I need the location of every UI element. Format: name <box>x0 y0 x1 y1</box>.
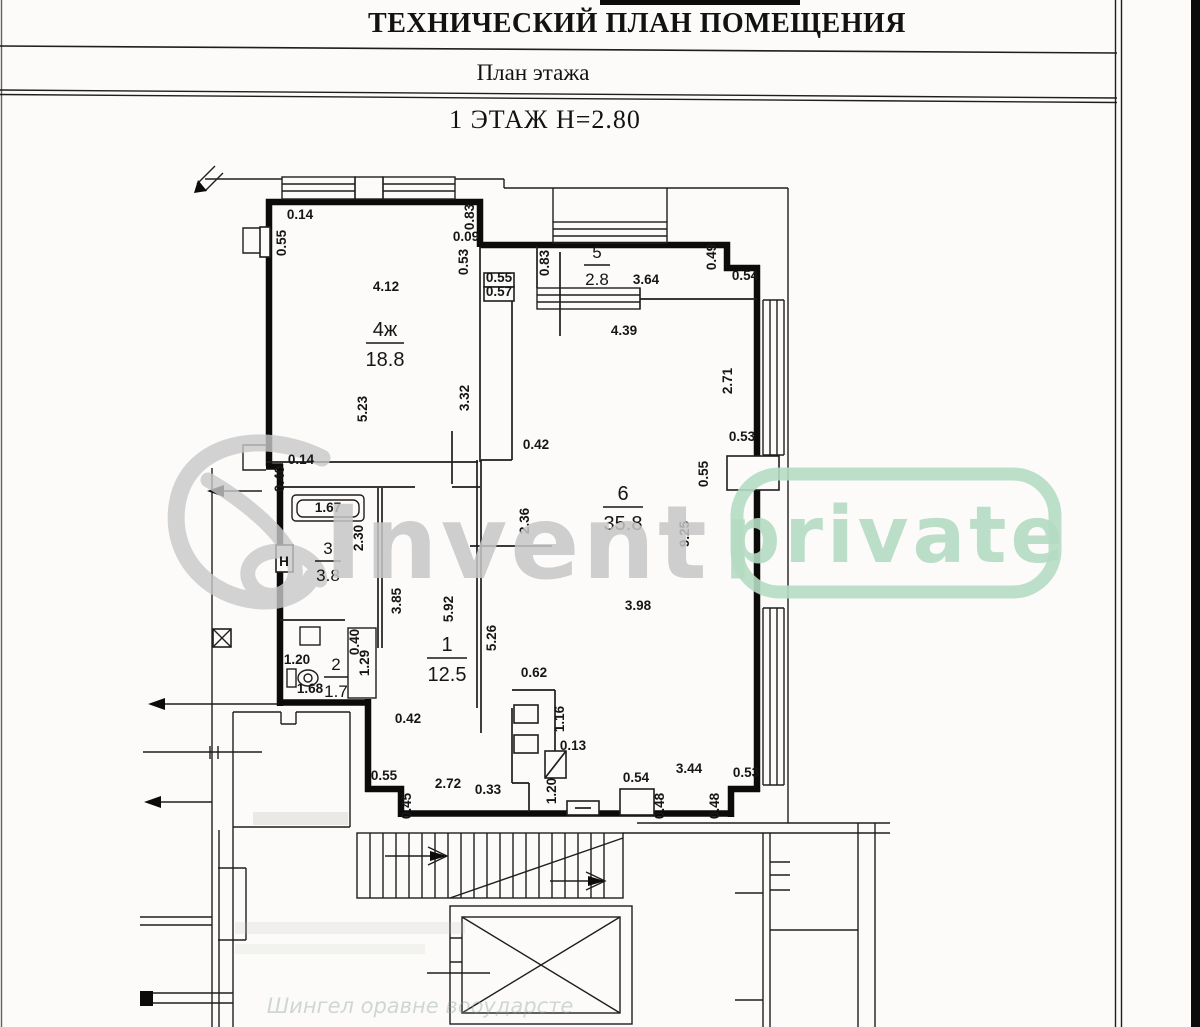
staircase <box>357 833 623 898</box>
dimension-label: 0.49 <box>704 244 719 270</box>
dimension-label: 5.26 <box>484 624 499 651</box>
dimension-label: 0.42 <box>523 437 549 452</box>
dimension-label: 0.48 <box>707 792 722 819</box>
room-number: 2 <box>331 655 340 674</box>
dimension-label: 2.71 <box>720 367 735 394</box>
watermark-brand: Invent <box>324 484 710 603</box>
dimension-label: 0.48 <box>652 792 667 819</box>
dimension-label: Н <box>279 554 289 569</box>
room-number: 5 <box>592 243 601 262</box>
dimension-label: 2.72 <box>435 776 461 791</box>
dimension-label: 5.23 <box>355 395 370 422</box>
dimension-label: 3.32 <box>457 385 472 411</box>
scan-bleed-smudges <box>235 922 465 954</box>
dimension-label: 4.39 <box>611 323 637 338</box>
room-area: 12.5 <box>428 664 467 686</box>
dimension-label: 0.54 <box>623 770 650 785</box>
dimension-label: 0.83 <box>462 203 477 230</box>
dimension-label: 1.20 <box>544 778 559 804</box>
dimension-label: 0.55 <box>486 270 513 285</box>
dimension-label: 0.57 <box>486 284 512 299</box>
adjacent-structures <box>623 823 890 1027</box>
dimension-label: 3.44 <box>676 761 703 776</box>
room-area: 18.8 <box>366 349 405 371</box>
watermark-text: Inventprivate <box>324 474 1067 603</box>
room-labels: 4ж18.852.8635.833.8112.521.7 <box>315 243 643 701</box>
dimension-label: 0.33 <box>475 782 502 797</box>
dimension-label: 0.09 <box>453 229 479 244</box>
dimension-label: 0.53 <box>456 248 471 275</box>
document-page: ТЕХНИЧЕСКИЙ ПЛАН ПОМЕЩЕНИЯ План этажа 1 … <box>0 0 1200 1027</box>
dimension-label: 0.62 <box>521 665 547 680</box>
dimension-label: 1.16 <box>552 705 567 732</box>
dimension-label: 3.64 <box>633 272 660 287</box>
dimension-label: 0.83 <box>537 249 552 276</box>
watermark-badge-text: private <box>725 491 1068 581</box>
dimension-label: 1.20 <box>284 652 310 667</box>
floor-plan-drawing: 0.140.554.125.233.320.830.090.530.550.57… <box>0 0 1200 1027</box>
stair-direction-arrow <box>385 847 447 865</box>
faint-stamp-text: Шингел оравне вооударсте <box>267 994 574 1018</box>
dimension-label: 0.54 <box>732 268 759 283</box>
dimension-label: 0.42 <box>395 711 421 726</box>
dimension-label: 0.40 <box>272 466 287 492</box>
room-number: 4ж <box>373 319 398 341</box>
dimension-label: 0.53 <box>733 765 760 780</box>
dimension-label: 0.45 <box>399 792 414 819</box>
room-area: 2.8 <box>585 270 609 289</box>
room-area: 1.7 <box>324 682 348 701</box>
dimension-label: 0.13 <box>560 738 587 753</box>
dimension-label: 0.55 <box>371 768 398 783</box>
bleed-through-stamp: Шингел оравне вооударсте <box>267 994 574 1018</box>
dimension-label: 0.14 <box>287 207 314 222</box>
dimension-label: 4.12 <box>373 279 399 294</box>
dimension-label: 1.68 <box>297 681 324 696</box>
dimension-label: 1.29 <box>357 650 372 676</box>
dimension-label: 0.53 <box>729 429 756 444</box>
room-number: 1 <box>441 634 452 656</box>
dimension-label: 0.55 <box>274 229 289 256</box>
dimension-label: 0.14 <box>288 452 315 467</box>
